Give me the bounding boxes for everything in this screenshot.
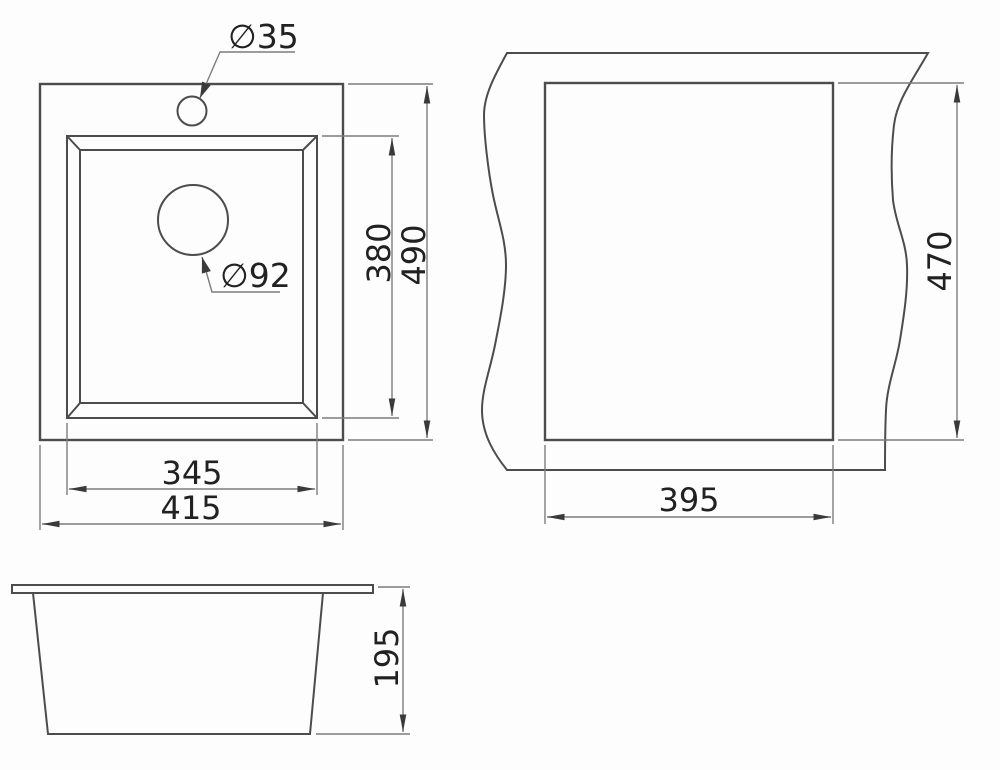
dim-bowl-width: 345 [67, 423, 317, 495]
dim-cutout-width-label: 395 [658, 481, 719, 519]
bowl-profile [33, 593, 323, 734]
dim-bowl-depth: 195 [316, 587, 410, 734]
top-view: ∅35 ∅92 380 490 3 [40, 17, 433, 530]
dim-cutout-length-label: 470 [921, 230, 959, 291]
sink-outer-edge [40, 84, 343, 440]
cutout-view: 470 395 [482, 53, 964, 524]
front-view: 195 [12, 585, 410, 734]
dim-overall-width-label: 415 [160, 489, 221, 527]
faucet-hole-callout: ∅35 [200, 17, 299, 98]
dim-cutout-width: 395 [545, 445, 833, 524]
dim-bowl-width-label: 345 [161, 454, 222, 492]
faucet-hole-leader-line [200, 52, 295, 98]
countertop-break-outline [482, 53, 928, 470]
drain-hole [158, 185, 228, 255]
faucet-hole-label: ∅35 [228, 17, 299, 56]
cutout-opening [545, 83, 833, 440]
dim-bowl-depth-label: 195 [368, 627, 406, 688]
faucet-hole [178, 97, 207, 126]
sink-rim-profile [12, 585, 373, 593]
dim-cutout-length: 470 [838, 83, 964, 440]
drain-hole-label: ∅92 [220, 256, 291, 295]
dim-bowl-length-label: 380 [360, 222, 398, 283]
drain-hole-callout: ∅92 [202, 256, 291, 295]
dim-overall-length-label: 490 [395, 224, 433, 285]
sink-technical-drawing: ∅35 ∅92 380 490 3 [0, 0, 1000, 770]
drawing-svg: ∅35 ∅92 380 490 3 [0, 0, 1000, 770]
dim-bowl-length: 380 [322, 136, 399, 418]
